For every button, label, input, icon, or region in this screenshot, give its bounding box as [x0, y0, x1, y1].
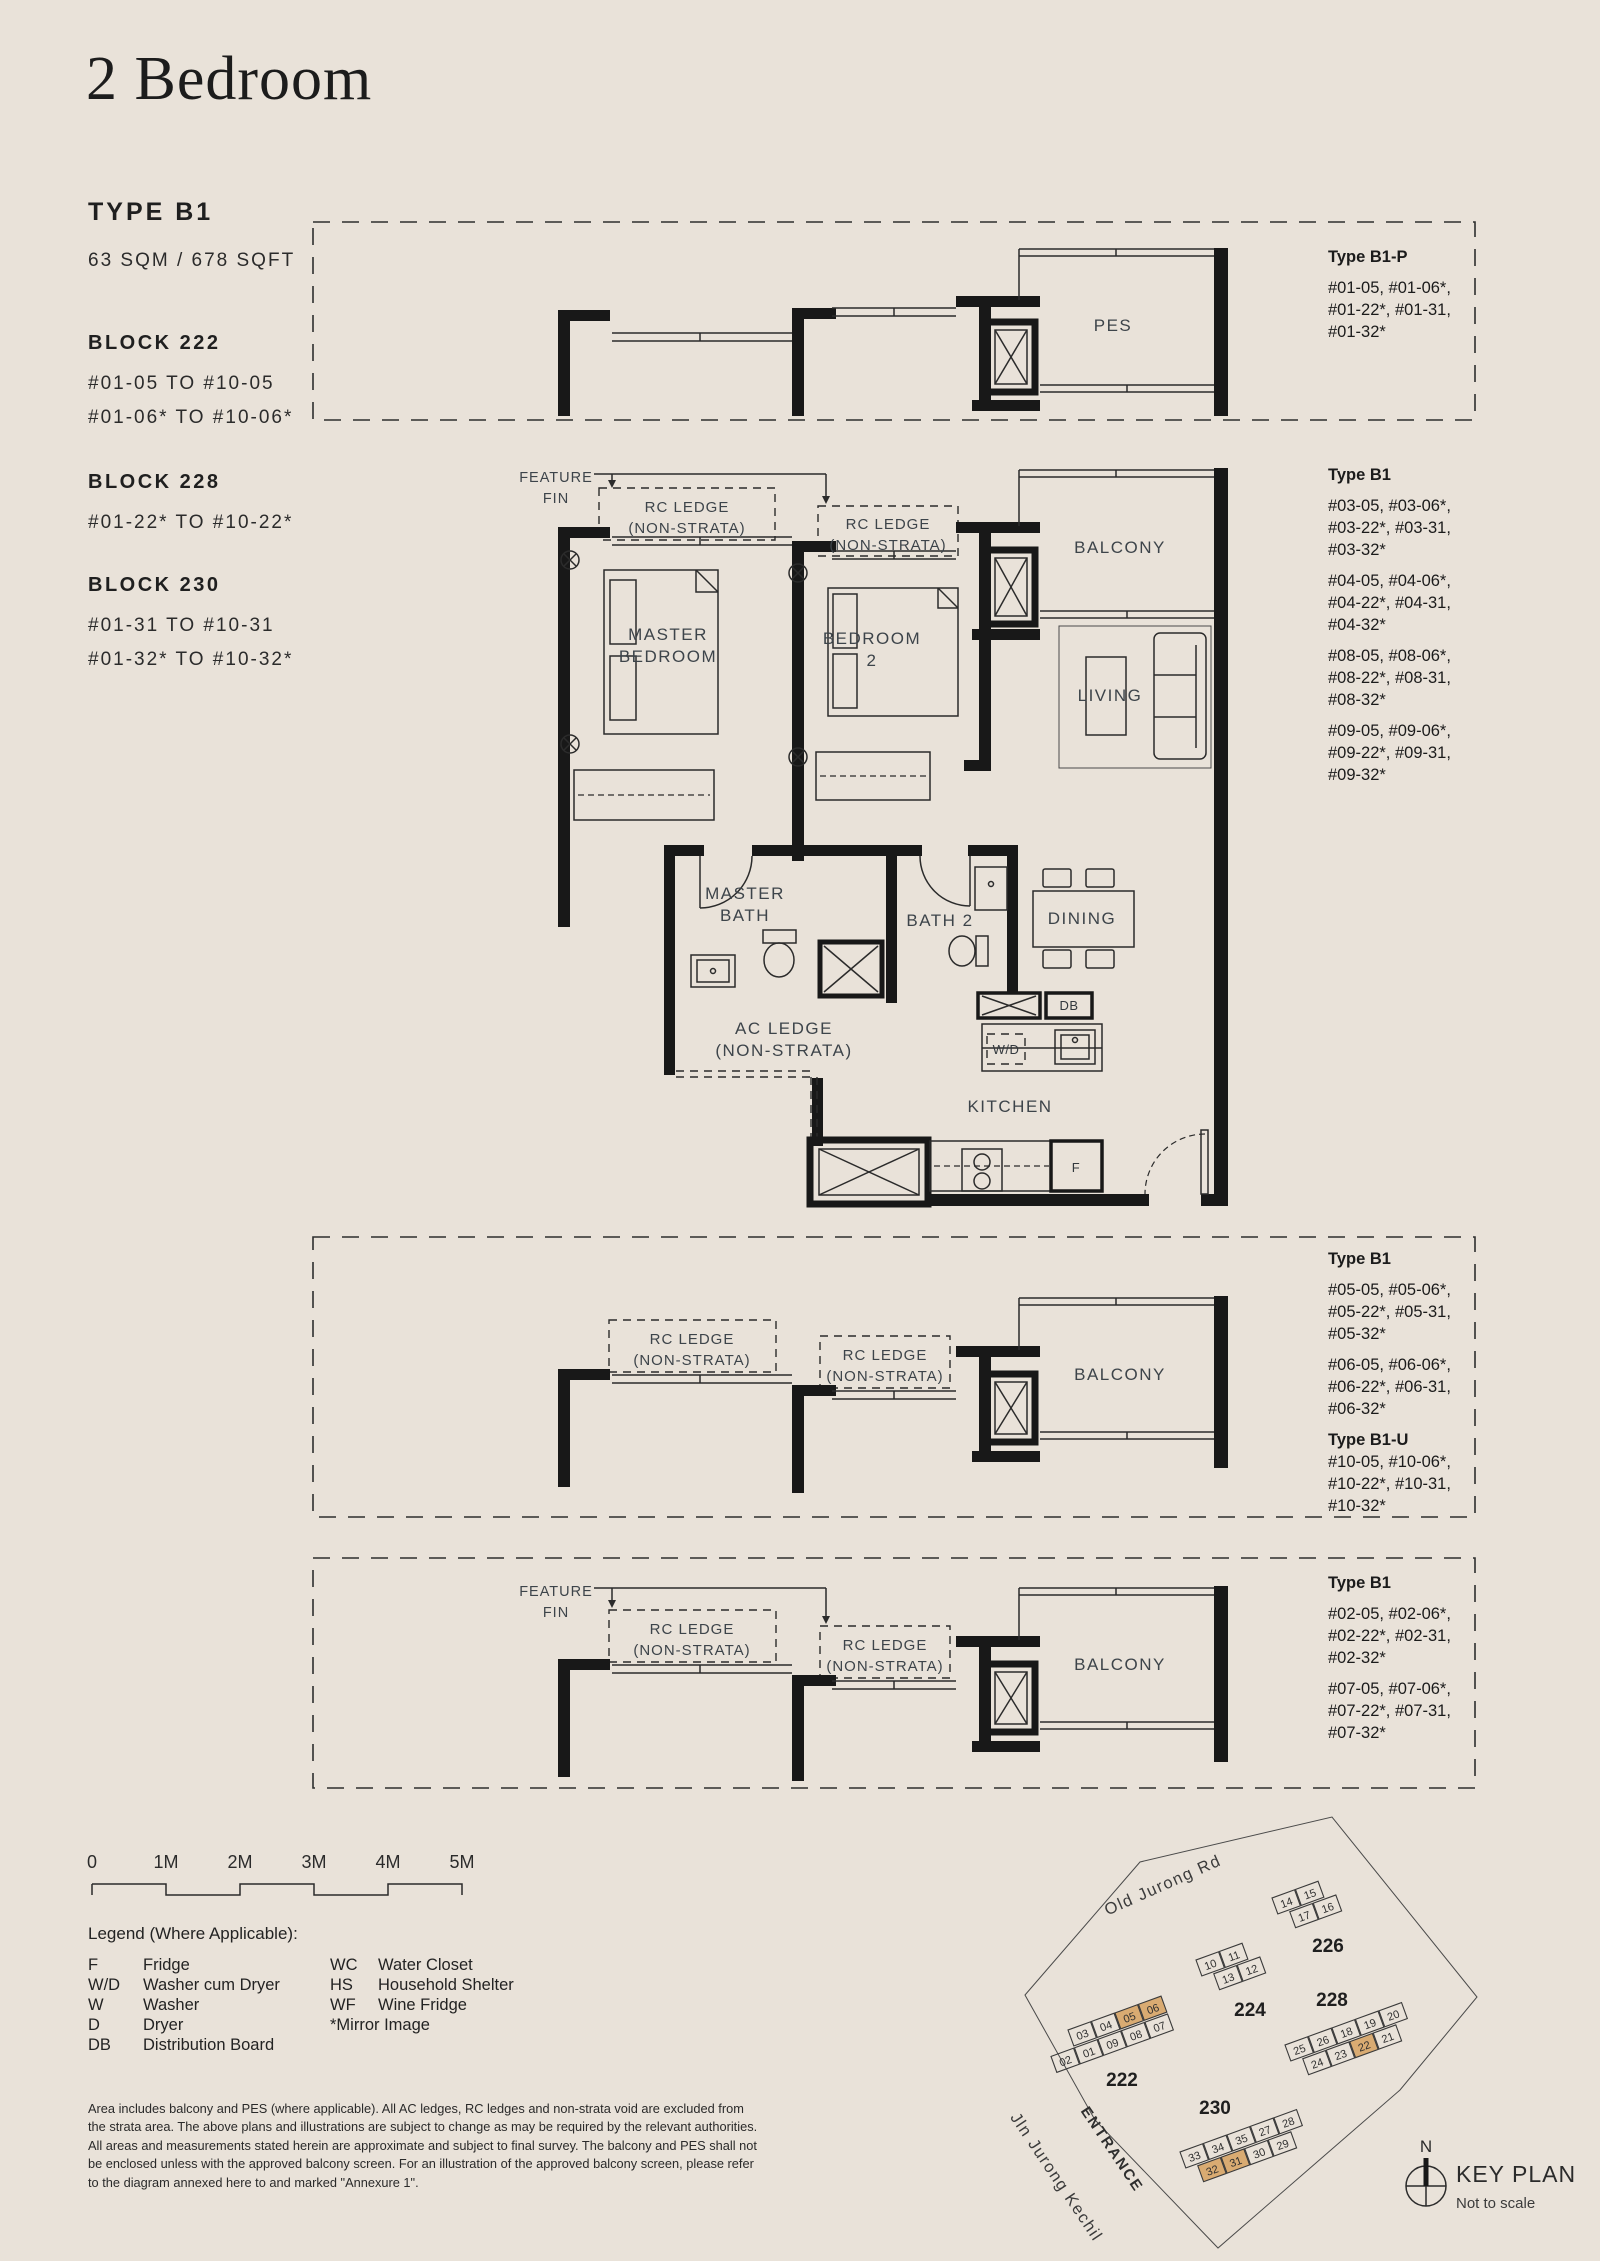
- room-label-ac-ledge: AC LEDGE: [735, 1019, 833, 1038]
- annotation-line: #10-22*, #10-31,: [1328, 1473, 1498, 1495]
- block-label-228: 228: [1316, 1990, 1348, 2011]
- sofa: [1154, 633, 1206, 759]
- plan-bottom-panel: FEATURE FIN RC LEDGE (NON-STRATA) RC LED…: [519, 1584, 1228, 1781]
- annotation-line: #04-22*, #04-31,: [1328, 592, 1498, 614]
- annotation-line: #06-32*: [1328, 1398, 1498, 1420]
- annotation-line: #09-32*: [1328, 764, 1498, 786]
- disclaimer: Area includes balcony and PES (where app…: [88, 2100, 757, 2192]
- annotation-line: #03-32*: [1328, 539, 1498, 561]
- annotation-line: #05-32*: [1328, 1323, 1498, 1345]
- room-label-master-bath: BATH: [720, 906, 770, 925]
- legend-row: DBDistribution Board: [88, 2036, 274, 2055]
- legend-row: W/DWasher cum Dryer: [88, 1976, 280, 1995]
- legend-row: WCWater Closet: [330, 1956, 473, 1975]
- annotation-line: #10-32*: [1328, 1495, 1498, 1517]
- annotation-line: #01-05, #01-06*,: [1328, 277, 1498, 299]
- legend-row: DDryer: [88, 2016, 183, 2035]
- disclaimer-line: the strata area. The above plans and ill…: [88, 2118, 757, 2136]
- scale-tick: 5M: [440, 1852, 484, 1873]
- rc-ledge-label: (NON-STRATA): [826, 1658, 943, 1675]
- legend-mirror-note: *Mirror Image: [330, 2016, 430, 2035]
- rc-ledge-label: (NON-STRATA): [628, 520, 745, 537]
- fridge-label: F: [1072, 1160, 1080, 1175]
- annotation-line: #05-22*, #05-31,: [1328, 1301, 1498, 1323]
- annotation-line: #08-05, #08-06*,: [1328, 645, 1498, 667]
- room-label-bath2: BATH 2: [906, 911, 973, 930]
- annotation-line: #02-05, #02-06*,: [1328, 1603, 1498, 1625]
- rc-ledge-label: (NON-STRATA): [633, 1642, 750, 1659]
- scale-tick: 4M: [366, 1852, 410, 1873]
- bed-2: [828, 588, 958, 716]
- room-label-bedroom2: BEDROOM: [823, 629, 921, 648]
- plan-mid-panel: RC LEDGE (NON-STRATA) RC LEDGE (NON-STRA…: [558, 1296, 1228, 1493]
- annotation-main-plan: Type B1 #03-05, #03-06*, #03-22*, #03-31…: [1328, 464, 1498, 786]
- feature-fin-label: FIN: [543, 1605, 569, 1621]
- shaft-x-box: [987, 322, 1035, 392]
- annotation-line: #01-32*: [1328, 321, 1498, 343]
- room-label-master-bath: MASTER: [705, 884, 785, 903]
- legend-desc: Fridge: [143, 1956, 190, 1974]
- annotation-line: #04-32*: [1328, 614, 1498, 636]
- disclaimer-line: All areas and measurements stated herein…: [88, 2137, 757, 2155]
- room-label-ac-ledge: (NON-STRATA): [715, 1041, 852, 1060]
- annotation-line: #08-32*: [1328, 689, 1498, 711]
- feature-fin-label: FEATURE: [519, 1584, 593, 1600]
- shaft-x-box: [987, 1664, 1035, 1732]
- feature-fin-label: FIN: [543, 491, 569, 507]
- legend-row: HSHousehold Shelter: [330, 1976, 514, 1995]
- annotation-heading: Type B1: [1328, 1248, 1498, 1270]
- wardrobe: [816, 752, 930, 800]
- legend-row: WWasher: [88, 1996, 199, 2015]
- annotation-line: #09-22*, #09-31,: [1328, 742, 1498, 764]
- legend-abbr: W/D: [88, 1976, 143, 1995]
- scale-tick: 1M: [144, 1852, 188, 1873]
- rc-ledge-label: (NON-STRATA): [829, 537, 946, 554]
- rc-ledge-label: RC LEDGE: [650, 1621, 735, 1638]
- shower-x-box: [820, 942, 882, 996]
- legend-abbr: WC: [330, 1956, 378, 1975]
- legend-desc: Washer: [143, 1996, 199, 2014]
- legend-heading: Legend (Where Applicable):: [88, 1924, 298, 1944]
- annotation-line: #07-22*, #07-31,: [1328, 1700, 1498, 1722]
- scale-tick: 3M: [292, 1852, 336, 1873]
- legend-row: FFridge: [88, 1956, 190, 1975]
- annotation-line: #02-22*, #02-31,: [1328, 1625, 1498, 1647]
- room-label-master-bedroom: BEDROOM: [619, 647, 717, 666]
- scale-tick: 0: [70, 1852, 114, 1873]
- scale-tick: 2M: [218, 1852, 262, 1873]
- rc-ledge-label: (NON-STRATA): [826, 1368, 943, 1385]
- annotation-line: #02-32*: [1328, 1647, 1498, 1669]
- feature-fin-label: FEATURE: [519, 470, 593, 486]
- north-compass-icon: [1406, 2158, 1446, 2206]
- room-label-pes: PES: [1094, 316, 1133, 335]
- key-plan-block-228: 25 26 18 19 20 24 23 22 21: [1285, 2003, 1414, 2079]
- annotation-line: #03-22*, #03-31,: [1328, 517, 1498, 539]
- key-plan-block-222: 03 04 05 06 02 01 09 08 07: [1045, 1996, 1174, 2072]
- disclaimer-line: be enclosed unless with the approved bal…: [88, 2155, 757, 2173]
- block-label-230: 230: [1199, 2098, 1231, 2119]
- annotation-line: #07-32*: [1328, 1722, 1498, 1744]
- shaft-x-box: [987, 550, 1035, 624]
- plan-top-panel: PES: [558, 248, 1228, 416]
- legend-abbr: HS: [330, 1976, 378, 1995]
- room-label-bedroom2: 2: [867, 651, 878, 670]
- rc-ledge-label: RC LEDGE: [846, 516, 931, 533]
- wd-label: W/D: [993, 1042, 1020, 1057]
- annotation-bottom-panel: Type B1 #02-05, #02-06*, #02-22*, #02-31…: [1328, 1572, 1498, 1744]
- room-label-balcony: BALCONY: [1074, 538, 1166, 557]
- entrance-door: [1145, 1130, 1208, 1194]
- legend-abbr: WF: [330, 1996, 378, 2015]
- rc-ledge-label: RC LEDGE: [843, 1637, 928, 1654]
- north-label: N: [1420, 2137, 1432, 2156]
- annotation-heading: Type B1: [1328, 464, 1498, 486]
- legend-desc: Dryer: [143, 2016, 183, 2034]
- legend-desc: Water Closet: [378, 1956, 473, 1974]
- annotation-line: #03-05, #03-06*,: [1328, 495, 1498, 517]
- shaft-x-box: [987, 1374, 1035, 1442]
- annotation-line: #10-05, #10-06*,: [1328, 1451, 1498, 1473]
- room-label-kitchen: KITCHEN: [967, 1097, 1052, 1116]
- room-label-master-bedroom: MASTER: [628, 625, 708, 644]
- room-label-dining: DINING: [1048, 909, 1117, 928]
- legend-abbr: DB: [88, 2036, 143, 2055]
- annotation-line: #08-22*, #08-31,: [1328, 667, 1498, 689]
- rc-ledge-label: RC LEDGE: [645, 499, 730, 516]
- room-label-balcony: BALCONY: [1074, 1365, 1166, 1384]
- legend-abbr: W: [88, 1996, 143, 2015]
- key-plan-block-226: 14 15 17 16: [1272, 1877, 1342, 1932]
- block-label-226: 226: [1312, 1936, 1344, 1957]
- annotation-heading: Type B1-P: [1328, 246, 1498, 268]
- annotation-heading: Type B1-U: [1328, 1429, 1498, 1451]
- db-label: DB: [1059, 998, 1078, 1013]
- legend-abbr: D: [88, 2016, 143, 2035]
- annotation-line: #01-22*, #01-31,: [1328, 299, 1498, 321]
- scale-bar: [92, 1884, 462, 1895]
- entrance-label: ENTRANCE: [1077, 2104, 1147, 2196]
- annotation-mid-panel: Type B1 #05-05, #05-06*, #05-22*, #05-31…: [1328, 1248, 1498, 1517]
- room-label-living: LIVING: [1078, 686, 1143, 705]
- legend-desc: Distribution Board: [143, 2036, 274, 2054]
- rc-ledge-label: RC LEDGE: [843, 1347, 928, 1364]
- key-plan: Old Jurong Rd Jln Jurong Kechil ENTRANCE…: [1006, 1817, 1576, 2248]
- key-plan-block-230: 33 34 35 27 28 32 31 30 29: [1180, 2110, 1309, 2186]
- block-label-222: 222: [1106, 2070, 1138, 2091]
- annotation-line: #06-05, #06-06*,: [1328, 1354, 1498, 1376]
- ac-ledge-boundary: [676, 1071, 817, 1140]
- legend-abbr: F: [88, 1956, 143, 1975]
- annotation-line: #04-05, #04-06*,: [1328, 570, 1498, 592]
- site-boundary: [1025, 1817, 1477, 2248]
- rc-ledge-label: (NON-STRATA): [633, 1352, 750, 1369]
- annotation-top-panel: Type B1-P #01-05, #01-06*, #01-22*, #01-…: [1328, 246, 1498, 343]
- floor-plan-page: 2 Bedroom TYPE B1 63 SQM / 678 SQFT BLOC…: [0, 0, 1600, 2261]
- annotation-line: #07-05, #07-06*,: [1328, 1678, 1498, 1700]
- legend-desc: Household Shelter: [378, 1976, 514, 1994]
- disclaimer-line: Area includes balcony and PES (where app…: [88, 2100, 757, 2118]
- legend-desc: Washer cum Dryer: [143, 1976, 280, 1994]
- room-label-balcony: BALCONY: [1074, 1655, 1166, 1674]
- legend-desc: Wine Fridge: [378, 1996, 467, 2014]
- annotation-line: #09-05, #09-06*,: [1328, 720, 1498, 742]
- rc-ledge-label: RC LEDGE: [650, 1331, 735, 1348]
- disclaimer-line: to the diagram annexed here to and marke…: [88, 2174, 757, 2192]
- wardrobe: [574, 770, 714, 820]
- block-label-224: 224: [1234, 2000, 1266, 2021]
- annotation-line: #05-05, #05-06*,: [1328, 1279, 1498, 1301]
- panel-frame-top: [313, 222, 1475, 420]
- plan-main: FEATURE FIN RC LEDGE (NON-STRATA) RC LED…: [519, 468, 1228, 1206]
- legend-row: WFWine Fridge: [330, 1996, 467, 2015]
- annotation-heading: Type B1: [1328, 1572, 1498, 1594]
- key-plan-scale-note: Not to scale: [1456, 2195, 1535, 2212]
- annotation-line: #06-22*, #06-31,: [1328, 1376, 1498, 1398]
- key-plan-block-224: 10 11 13 12: [1196, 1939, 1266, 1994]
- key-plan-title: KEY PLAN: [1456, 2161, 1576, 2187]
- household-shelter-x-box: [810, 1140, 928, 1204]
